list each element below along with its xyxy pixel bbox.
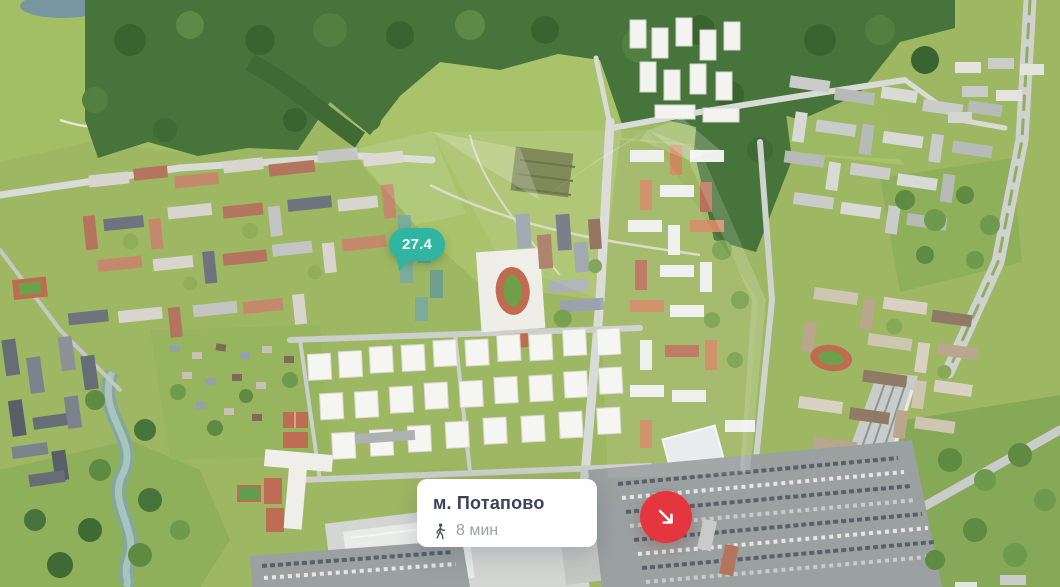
metro-station-name: м. Потапово	[433, 493, 597, 514]
open-location-button[interactable]	[640, 491, 692, 543]
price-marker-label: 27.4	[402, 236, 432, 253]
walk-time: 8 мин	[456, 522, 498, 540]
metro-info-card: м. Потапово 8 мин	[417, 479, 597, 547]
masterplan-map[interactable]: 27.4 м. Потапово 8 мин	[0, 0, 1060, 587]
arrow-down-right-icon	[655, 506, 677, 528]
walking-person-icon	[433, 523, 447, 540]
price-marker[interactable]: 27.4	[389, 228, 445, 261]
